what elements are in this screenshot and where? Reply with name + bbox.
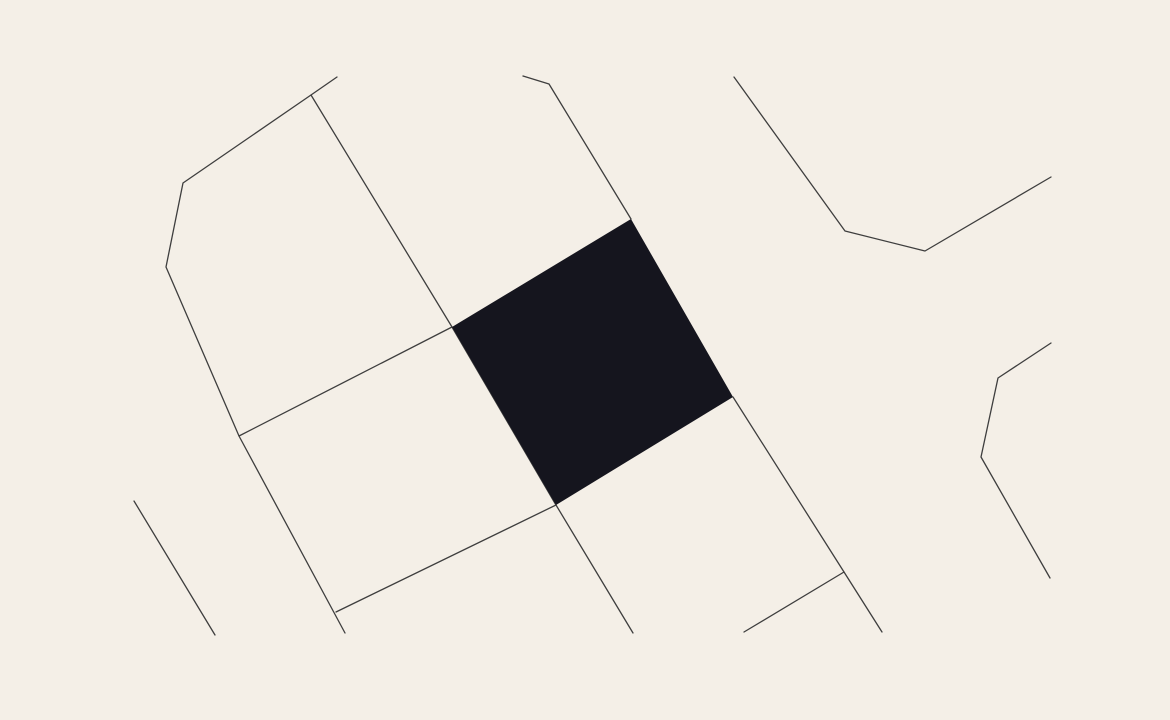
street-from-parcel-right: [733, 397, 882, 632]
street-cross-to-parcel-left: [239, 327, 452, 436]
street-cross-to-parcel-bottom: [336, 505, 556, 612]
street-to-parcel-top: [523, 76, 631, 219]
street-branch-southeast: [744, 572, 844, 632]
highlighted-parcel: [452, 219, 733, 505]
map-view: [0, 0, 1170, 720]
map-canvas: [0, 0, 1170, 720]
street-northwest-boundary: [166, 77, 345, 633]
street-east: [981, 343, 1051, 578]
street-northeast: [734, 77, 1051, 251]
street-southwest-short: [134, 501, 215, 635]
